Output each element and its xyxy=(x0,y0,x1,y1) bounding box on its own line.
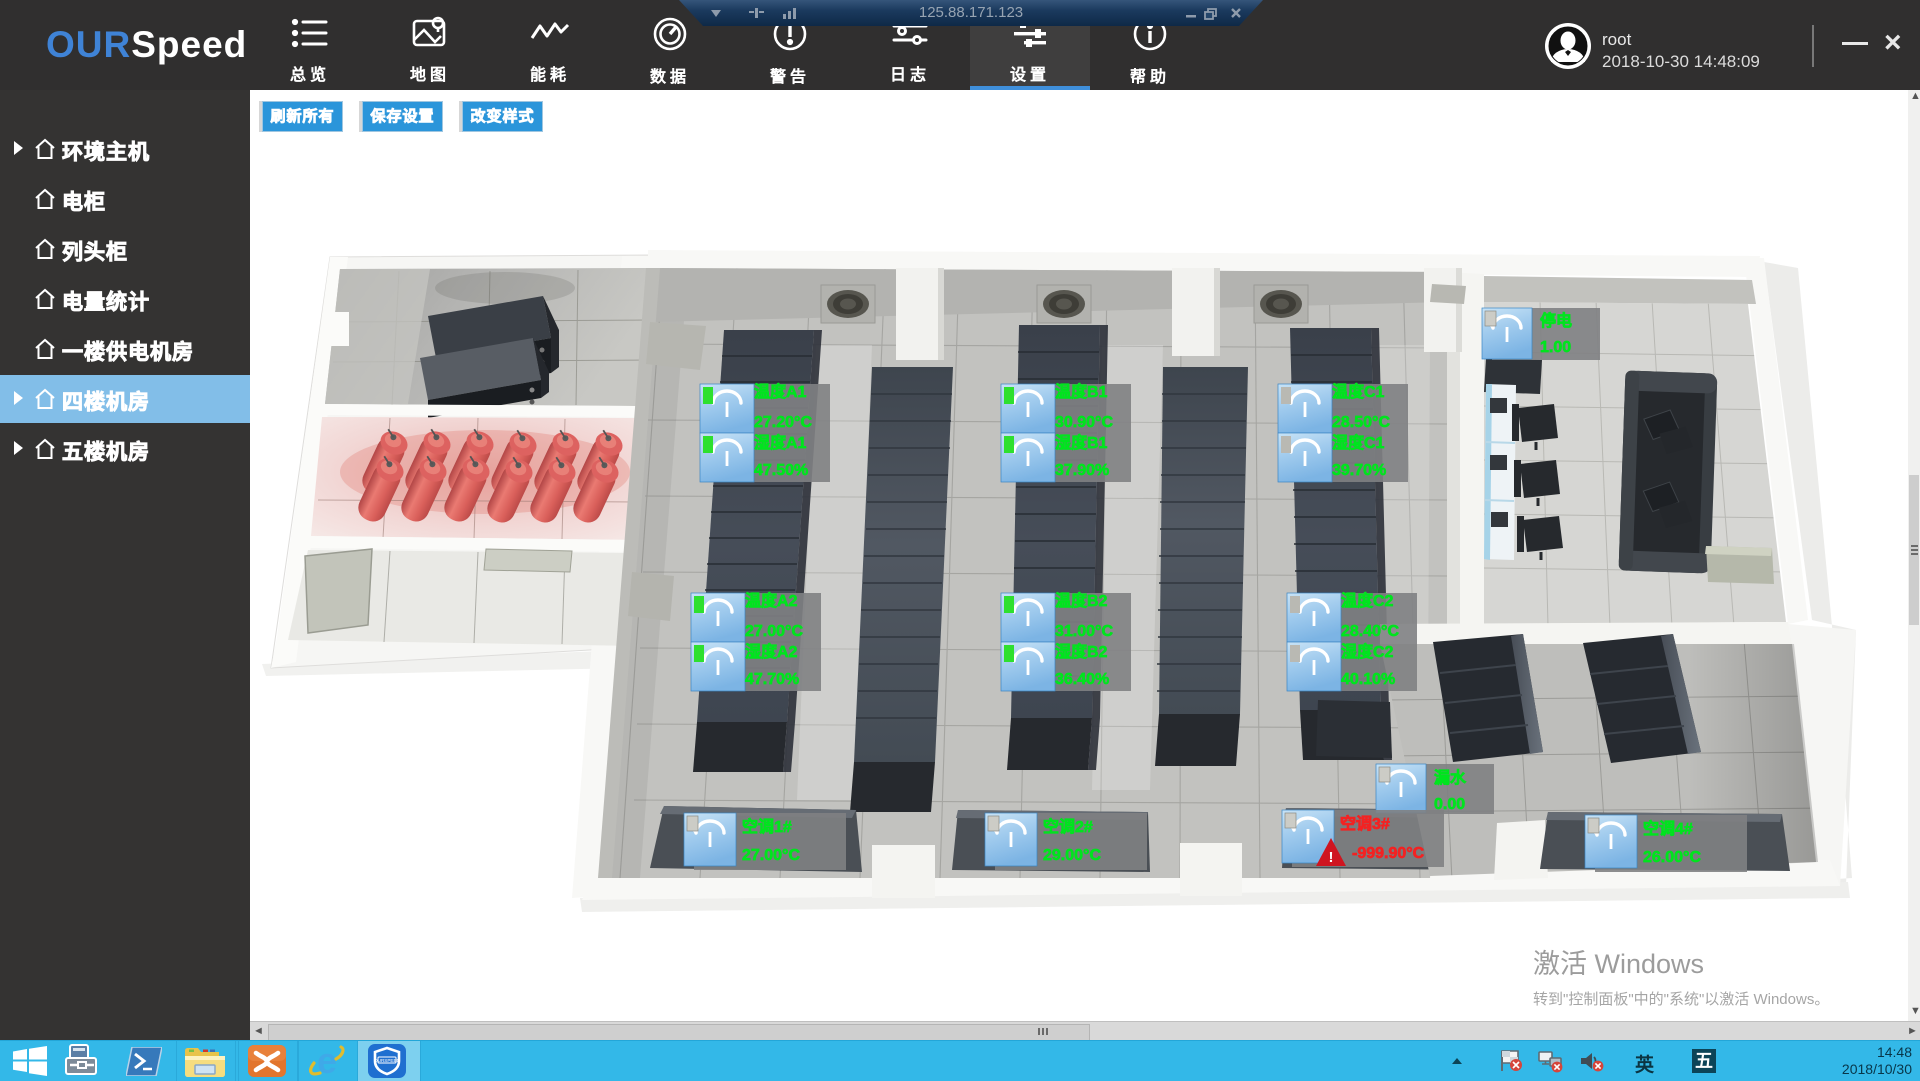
svg-text:空调1#: 空调1# xyxy=(742,817,792,836)
svg-text:26.00°C: 26.00°C xyxy=(1643,849,1701,866)
svg-text:湿度A1: 湿度A1 xyxy=(753,433,807,452)
svg-text:温度B2: 温度B2 xyxy=(1054,591,1108,610)
svg-text:31.00°C: 31.00°C xyxy=(1055,623,1113,640)
svg-text:空调3#: 空调3# xyxy=(1340,814,1390,833)
svg-text:27.00°C: 27.00°C xyxy=(742,847,800,864)
svg-text:28.40°C: 28.40°C xyxy=(1341,623,1399,640)
svg-text:湿度C2: 湿度C2 xyxy=(1340,642,1394,661)
svg-text:39.70%: 39.70% xyxy=(1332,462,1386,479)
svg-text:-999.90°C: -999.90°C xyxy=(1352,845,1425,862)
svg-text:湿度C1: 湿度C1 xyxy=(1331,433,1385,452)
svg-text:37.90%: 37.90% xyxy=(1055,462,1109,479)
svg-text:空调4#: 空调4# xyxy=(1643,819,1693,838)
svg-text:温度B1: 温度B1 xyxy=(1054,382,1108,401)
svg-text:28.50°C: 28.50°C xyxy=(1332,414,1390,431)
svg-text:温度C1: 温度C1 xyxy=(1331,382,1385,401)
svg-text:温度C2: 温度C2 xyxy=(1340,591,1394,610)
svg-text:30.90°C: 30.90°C xyxy=(1055,414,1113,431)
svg-text:47.50%: 47.50% xyxy=(754,462,808,479)
svg-text:1.00: 1.00 xyxy=(1540,339,1571,356)
svg-text:OURSPEED: OURSPEED xyxy=(374,1058,400,1063)
svg-text:空调2#: 空调2# xyxy=(1043,817,1093,836)
svg-text:29.00°C: 29.00°C xyxy=(1043,847,1101,864)
svg-text:湿度B1: 湿度B1 xyxy=(1054,433,1108,452)
svg-text:40.10%: 40.10% xyxy=(1341,671,1395,688)
svg-text:!: ! xyxy=(1329,849,1334,866)
svg-text:漏水: 漏水 xyxy=(1434,768,1467,787)
svg-text:27.00°C: 27.00°C xyxy=(745,623,803,640)
svg-text:湿度B2: 湿度B2 xyxy=(1054,642,1108,661)
svg-text:27.20°C: 27.20°C xyxy=(754,414,812,431)
svg-text:温度A1: 温度A1 xyxy=(753,382,807,401)
svg-text:湿度A2: 湿度A2 xyxy=(744,642,798,661)
svg-text:47.70%: 47.70% xyxy=(745,671,799,688)
svg-text:36.40%: 36.40% xyxy=(1055,671,1109,688)
svg-text:停电: 停电 xyxy=(1540,311,1572,330)
svg-text:温度A2: 温度A2 xyxy=(744,591,798,610)
